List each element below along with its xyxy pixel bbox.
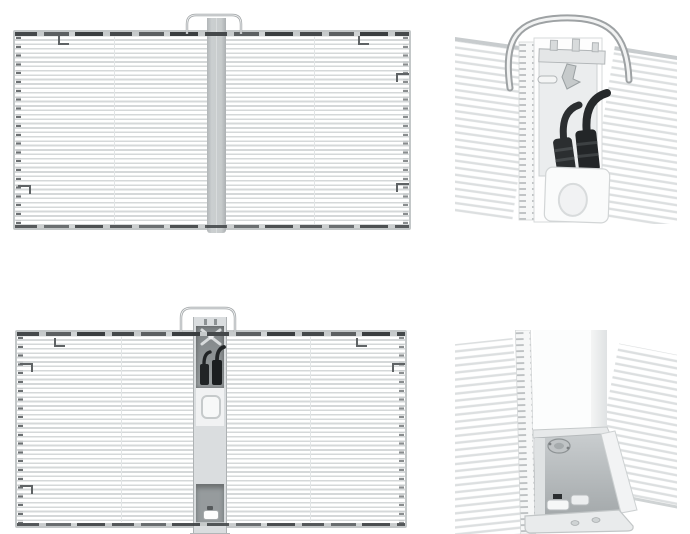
product-collage [0, 0, 690, 534]
figure-detail-top-connectors [455, 12, 677, 224]
bottom-connector [547, 500, 569, 510]
lock-hook-icon [20, 484, 36, 496]
detail-top-illustration [455, 12, 677, 224]
edge-rail-right [403, 35, 408, 225]
led-louver-strips [15, 330, 407, 528]
led-louver-strips [13, 30, 411, 230]
bottom-rail [17, 523, 405, 526]
cable-compartment-bottom [196, 484, 224, 522]
bottom-connector [553, 494, 562, 499]
compartment-wall [535, 438, 545, 516]
lock-hook-icon [393, 72, 409, 84]
figure-panel-rear-view-bottom [15, 305, 407, 534]
detail-bottom-illustration [455, 330, 677, 534]
panel-seam [314, 36, 315, 224]
center-hanging-bar [193, 317, 227, 534]
round-connector [548, 439, 570, 453]
edge-profile [519, 42, 534, 220]
latch-pin [538, 76, 557, 83]
lock-hook-icon [357, 36, 371, 48]
lock-hook-icon [53, 338, 67, 350]
edge-rail-left [16, 35, 21, 225]
lock-hook-icon [355, 338, 369, 350]
bottom-rail [15, 225, 409, 228]
carry-handle-icon [177, 305, 239, 332]
lock-hook-icon [393, 182, 409, 194]
panel-seam [310, 336, 311, 522]
center-hanging-bar [533, 330, 595, 432]
lock-hook-icon [20, 362, 36, 374]
aviation-cable-connector-icon [575, 129, 600, 173]
panel-seam [114, 36, 115, 224]
bar-side-face [591, 330, 607, 431]
carry-handle-icon [183, 12, 245, 34]
lock-hook-icon [57, 36, 71, 48]
junction-box [544, 167, 610, 223]
bottom-connector [571, 495, 589, 505]
figure-detail-bottom-foot [455, 330, 677, 534]
lock-hook-icon [389, 362, 405, 374]
cable-knockout [201, 395, 221, 419]
panel-seam [121, 336, 122, 522]
bottom-connector [203, 510, 219, 520]
center-hanging-bar [207, 18, 226, 233]
compartment-cover [196, 388, 224, 426]
figure-panel-rear-view-top [13, 12, 411, 236]
top-rail [17, 332, 405, 336]
lock-hook-icon [18, 184, 34, 196]
